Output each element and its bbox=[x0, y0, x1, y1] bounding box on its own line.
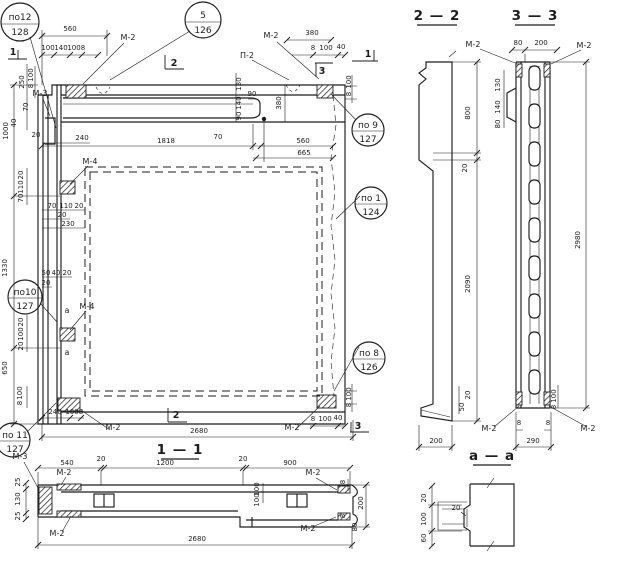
dim-label: 20 bbox=[464, 391, 472, 400]
callout-top-text: 5 bbox=[200, 11, 206, 21]
dim-label: 3 bbox=[355, 421, 362, 432]
dim-label: М-2 bbox=[577, 41, 592, 50]
dim-label: М-2 bbox=[106, 423, 121, 432]
section-headers: 2 — 2 3 — 3 1 — 1 а — а bbox=[157, 8, 559, 465]
dim-label: 20 bbox=[239, 455, 248, 463]
dim-label: 130 bbox=[235, 77, 243, 90]
dim-label: 130 bbox=[494, 78, 502, 91]
section-2-2-cut-line bbox=[421, 51, 456, 417]
page: { "meta": { "kind": "structural panel wo… bbox=[0, 0, 618, 565]
dim-label: 20 bbox=[17, 318, 25, 327]
dim-label: 1000 bbox=[2, 122, 10, 140]
dim-label: 100 bbox=[65, 408, 78, 416]
callout-po8: по 8 126 bbox=[353, 342, 385, 374]
callout-bottom-text: 127 bbox=[16, 302, 33, 312]
dim-label: 90 bbox=[235, 112, 243, 121]
dim-label: 1818 bbox=[157, 137, 175, 145]
dim-label: 8 bbox=[345, 403, 353, 407]
dim-label: 8 bbox=[339, 514, 347, 518]
anchor-plate-m2-top-left bbox=[66, 85, 86, 98]
dim-label: 2 bbox=[171, 58, 178, 69]
dim-label: 100 bbox=[345, 75, 353, 88]
dim-label: М-2 bbox=[264, 31, 279, 40]
dim-label: 560 bbox=[63, 25, 76, 33]
dim-label: 380 bbox=[275, 96, 283, 109]
dim-label: 20 bbox=[461, 164, 469, 173]
dim-label: 70 bbox=[17, 194, 25, 203]
dim-label: 8 bbox=[546, 419, 550, 427]
dim-label: 140 bbox=[494, 100, 502, 113]
dim-label: 140 bbox=[235, 96, 243, 109]
dim-label: 100 bbox=[16, 386, 24, 399]
header-3-3: 3 — 3 bbox=[512, 8, 559, 24]
dim-label: М-4 bbox=[80, 302, 95, 311]
dim-label: 540 bbox=[60, 459, 73, 467]
dim-label: 2090 bbox=[464, 275, 472, 293]
callout-bottom-text: 124 bbox=[362, 208, 379, 218]
dim-label: М-2 bbox=[301, 524, 316, 533]
callout-5: 5 126 bbox=[185, 2, 221, 38]
dim-label: 20 bbox=[42, 279, 51, 287]
callout-top-text: по 1 bbox=[361, 194, 381, 204]
dim-label: 100 bbox=[345, 387, 353, 400]
callout-po9: по 9 127 bbox=[352, 114, 384, 146]
dim-label: 20 bbox=[452, 504, 461, 512]
dim-label: 70 bbox=[48, 202, 57, 210]
corner-tab bbox=[45, 118, 55, 144]
dim-label: 200 bbox=[534, 39, 547, 47]
dim-label: 100 bbox=[17, 327, 25, 340]
dim-label: 800 bbox=[464, 106, 472, 119]
dim-label: 1 bbox=[10, 47, 17, 58]
dim-label: 100 bbox=[67, 44, 80, 52]
dim-label: М-2 bbox=[57, 468, 72, 477]
callout-po10: по10 127 bbox=[8, 280, 42, 314]
callout-bottom-text: 127 bbox=[359, 135, 376, 145]
dim-label: 2980 bbox=[574, 231, 582, 249]
dim-label: М-3 bbox=[33, 89, 48, 98]
dim-label: 90 bbox=[248, 90, 257, 98]
dim-label: 130 bbox=[14, 492, 22, 505]
dim-label: 1330 bbox=[1, 259, 9, 277]
end-anchor-block bbox=[39, 487, 52, 514]
dim-label: 100 bbox=[253, 493, 261, 506]
dim-label: М-2 bbox=[285, 423, 300, 432]
dim-label: 8 bbox=[345, 92, 353, 96]
dim-label: 900 bbox=[283, 459, 296, 467]
dim-label: 8 bbox=[79, 408, 83, 416]
dim-label: 60 bbox=[420, 534, 428, 543]
dim-label: 50 bbox=[42, 269, 51, 277]
opening-outline-outer bbox=[85, 167, 322, 396]
callout-po12: по12 128 bbox=[1, 3, 39, 41]
dim-label: 8 bbox=[81, 44, 85, 52]
dim-label: 20 bbox=[58, 211, 67, 219]
dim-label: 8 bbox=[311, 415, 315, 423]
header-2-2: 2 — 2 bbox=[414, 8, 461, 24]
dim-label: 140 bbox=[54, 44, 67, 52]
dim-label: 80 bbox=[494, 120, 502, 129]
dim-label: 100 bbox=[319, 44, 332, 52]
dim-label: 1200 bbox=[156, 459, 174, 467]
dim-label: 40 bbox=[10, 119, 18, 128]
blueprint-canvas: 2 — 2 3 — 3 1 — 1 а — а по12 128 5 126 п… bbox=[0, 0, 618, 565]
dim-label: М-2 bbox=[482, 424, 497, 433]
callout-bottom-text: 126 bbox=[194, 26, 211, 36]
anchor-plate-m4-upper bbox=[60, 181, 75, 194]
callout-bottom-text: 126 bbox=[360, 363, 377, 373]
callout-top-text: по12 bbox=[9, 13, 32, 23]
dim-label: а bbox=[65, 348, 70, 357]
dim-label: 8 bbox=[550, 405, 558, 409]
dim-label: 100 bbox=[550, 389, 558, 402]
dim-label: М-2 bbox=[466, 40, 481, 49]
dim-label: 100 bbox=[27, 68, 35, 81]
opening-outline-inner bbox=[90, 172, 317, 391]
dim-label: 200 bbox=[429, 437, 442, 445]
anchor-top-left bbox=[516, 64, 522, 77]
callout-bottom-text: 128 bbox=[11, 28, 28, 38]
dim-label: 25 bbox=[14, 512, 22, 521]
dim-label: 200 bbox=[357, 496, 365, 509]
dim-label: М-2 bbox=[50, 529, 65, 538]
dim-label: П-2 bbox=[240, 51, 254, 60]
dim-label: 290 bbox=[526, 437, 539, 445]
void-dividers bbox=[104, 494, 297, 507]
dim-label: 20 bbox=[97, 455, 106, 463]
dim-label: 40 bbox=[337, 43, 346, 51]
dim-label: 70 bbox=[22, 103, 30, 112]
section-a-a-outline bbox=[464, 484, 514, 546]
anchor-bottom-left bbox=[516, 392, 522, 405]
callout-top-text: по10 bbox=[14, 288, 37, 298]
dim-label: 8 bbox=[517, 419, 521, 427]
dim-label: 8 bbox=[311, 44, 315, 52]
dim-label: 380 bbox=[305, 29, 318, 37]
dim-label: 2 bbox=[173, 410, 180, 421]
dim-label: 8 bbox=[27, 84, 35, 88]
plate-top-left bbox=[57, 484, 81, 490]
header-a-a: а — а bbox=[469, 448, 515, 464]
dim-label: 100 bbox=[420, 512, 428, 525]
dim-label: 20 bbox=[420, 494, 428, 503]
dim-label: 650 bbox=[1, 361, 9, 374]
dim-label: М-2 bbox=[306, 468, 321, 477]
dim-label: 20 bbox=[32, 131, 41, 139]
dim-label: 50 bbox=[458, 403, 466, 412]
dim-label: 240 bbox=[75, 134, 88, 142]
dim-label: М-3 bbox=[13, 452, 28, 461]
callout-top-text: по 11 bbox=[2, 431, 28, 441]
left-rib-lines bbox=[43, 85, 61, 424]
dim-label: 3 bbox=[319, 66, 326, 77]
dim-label: 20 bbox=[63, 269, 72, 277]
dim-label: 20 bbox=[75, 202, 84, 210]
top-slot bbox=[63, 98, 260, 118]
section-a-a-details bbox=[428, 478, 494, 551]
anchor-top-right bbox=[544, 64, 550, 77]
dim-label: 110 bbox=[59, 202, 72, 210]
dim-label: 2680 bbox=[188, 535, 206, 543]
dim-label: 20 bbox=[17, 342, 25, 351]
section-1-1-outline bbox=[38, 485, 357, 527]
section-3-3-dim-lines bbox=[504, 50, 590, 451]
dim-label: 80 bbox=[514, 39, 523, 47]
dim-label: 2680 bbox=[190, 427, 208, 435]
anchor-plate-m2-top-right bbox=[317, 85, 333, 98]
embed-arcs bbox=[96, 85, 300, 94]
dim-label: М-2 bbox=[581, 424, 596, 433]
section-a-a bbox=[428, 478, 514, 551]
dim-label: 100 bbox=[41, 44, 54, 52]
callout-po1: по 1 124 bbox=[355, 187, 387, 219]
dim-label: 250 bbox=[18, 75, 26, 88]
callout-top-text: по 9 bbox=[358, 121, 378, 131]
dim-label: 40 bbox=[334, 414, 343, 422]
dim-label: 230 bbox=[61, 220, 74, 228]
plan-dimension-lines bbox=[10, 30, 357, 441]
dim-label: 240 bbox=[48, 408, 61, 416]
dim-label: а bbox=[65, 306, 70, 315]
anchor-plate-m4-lower bbox=[60, 328, 75, 341]
dim-label: 8 bbox=[339, 480, 347, 484]
dim-label: 8 bbox=[16, 401, 24, 405]
plan-view bbox=[8, 30, 378, 441]
dim-label: 20 bbox=[17, 171, 25, 180]
dim-label: 560 bbox=[296, 137, 309, 145]
plan-dimension-ticks bbox=[11, 33, 356, 440]
dim-label: 40 bbox=[52, 269, 61, 277]
header-1-1: 1 — 1 bbox=[157, 442, 204, 458]
section-2-2-outline bbox=[419, 62, 452, 421]
dim-label: 80 bbox=[351, 523, 359, 532]
hollow-core-voids bbox=[529, 66, 540, 394]
broken-edge-line bbox=[331, 95, 336, 396]
dim-label: 100 bbox=[318, 415, 331, 423]
dim-label: 70 bbox=[214, 133, 223, 141]
dim-label: М-4 bbox=[83, 157, 98, 166]
dim-label: М-2 bbox=[121, 33, 136, 42]
dim-label: 1 bbox=[365, 49, 372, 60]
dim-label: 25 bbox=[14, 478, 22, 487]
dim-label: 110 bbox=[17, 180, 25, 193]
dim-label: 665 bbox=[297, 149, 310, 157]
callout-top-text: по 8 bbox=[359, 349, 379, 359]
plate-bottom-left bbox=[57, 511, 81, 517]
